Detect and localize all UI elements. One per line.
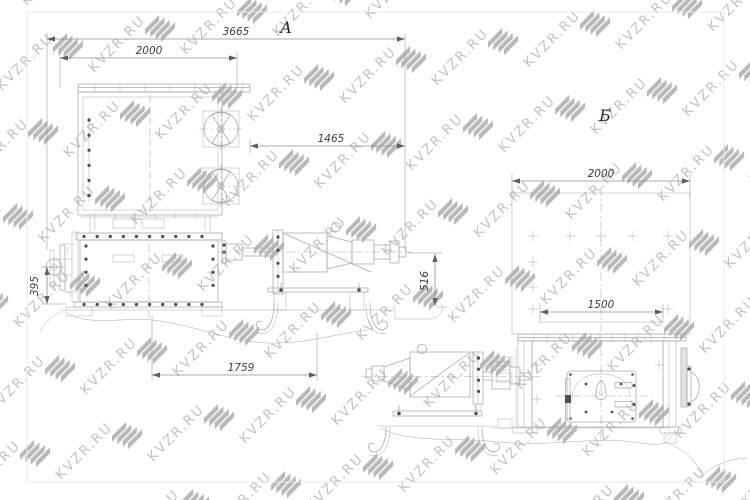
watermark-logo-icon — [318, 297, 354, 333]
watermark-text: KVZR.RU — [629, 226, 692, 289]
watermark-text: KVZR.RU — [654, 141, 717, 204]
watermark-text: KVZR.RU — [512, 329, 575, 392]
watermark-logo-icon — [276, 145, 312, 181]
watermark-text: KVZR.RU — [487, 414, 550, 477]
dim-2000b-value: 2000 — [588, 168, 615, 180]
view-b-label: Б — [598, 106, 611, 125]
dim-1465-value: 1465 — [318, 133, 345, 145]
watermark-text: KVZR.RU — [119, 486, 182, 500]
watermark-logo-icon — [117, 96, 153, 132]
watermark-logo-icon — [569, 328, 605, 364]
watermark-logo-icon — [594, 243, 630, 279]
watermark-text: KVZR.RU — [520, 7, 583, 70]
watermark-text: KVZR.RU — [361, 0, 424, 22]
watermark-logo-icon — [92, 181, 128, 217]
dim-1500-value: 1500 — [588, 299, 615, 311]
dim-516-value: 516 — [419, 271, 431, 291]
watermark-text: KVZR.RU — [746, 123, 750, 186]
watermark-layer: KVZR.RUKVZR.RUKVZR.RUKVZR.RUKVZR.RUKVZR.… — [0, 0, 750, 500]
watermark-logo-icon — [577, 6, 613, 42]
watermark-text: KVZR.RU — [0, 437, 24, 500]
watermark-text: KVZR.RU — [18, 0, 81, 9]
watermark-text: KVZR.RU — [453, 0, 516, 4]
right-bearing-bracket — [681, 348, 699, 407]
watermark-text: KVZR.RU — [420, 347, 483, 410]
watermark-logo-icon — [368, 127, 404, 163]
watermark-text: KVZR.RU — [0, 200, 7, 263]
watermark-logo-icon — [159, 248, 195, 284]
watermark-text: KVZR.RU — [738, 445, 750, 500]
technical-drawing-canvas: KVZR.RUKVZR.RUKVZR.RUKVZR.RUKVZR.RUKVZR.… — [0, 0, 750, 500]
watermark-logo-icon — [109, 418, 145, 454]
watermark-text: KVZR.RU — [470, 177, 533, 240]
dim-3665-value: 3665 — [223, 26, 250, 38]
watermark-text: KVZR.RU — [261, 298, 324, 361]
watermark-logo-icon — [619, 158, 655, 194]
door-latch — [615, 383, 632, 389]
watermark-logo-icon — [485, 24, 521, 60]
watermark-logo-icon — [611, 480, 647, 500]
watermark-text: KVZR.RU — [353, 280, 416, 343]
watermark-text: KVZR.RU — [378, 195, 441, 258]
watermark-logo-icon — [502, 261, 538, 297]
watermark-text: KVZR.RU — [144, 401, 207, 464]
watermark-text: KVZR.RU — [169, 316, 232, 379]
watermark-logo-icon — [736, 55, 750, 91]
watermark-logo-icon — [460, 109, 496, 145]
dim-395-value: 395 — [29, 276, 41, 296]
watermark-text: KVZR.RU — [244, 61, 307, 124]
dim-b-opening: 1500 — [540, 299, 663, 323]
watermark-logo-icon — [544, 413, 580, 449]
watermark-text: KVZR.RU — [211, 468, 274, 500]
fan-impeller-icon — [199, 107, 244, 151]
watermark-text: KVZR.RU — [60, 97, 123, 160]
watermark-logo-icon — [728, 377, 750, 413]
spring-hanger-icon — [256, 303, 278, 334]
watermark-text: KVZR.RU — [604, 311, 667, 374]
watermark-logo-icon — [42, 351, 78, 387]
watermark-logo-icon — [661, 310, 697, 346]
watermark-text: KVZR.RU — [704, 0, 750, 35]
watermark-logo-icon — [17, 436, 53, 472]
watermark-logo-icon — [293, 382, 329, 418]
watermark-logo-icon — [268, 467, 304, 500]
watermark-logo-icon — [209, 78, 245, 114]
watermark-logo-icon — [435, 194, 471, 230]
watermark-logo-icon — [50, 29, 86, 65]
watermark-logo-icon — [644, 73, 680, 109]
watermark-logo-icon — [686, 225, 722, 261]
watermark-text: KVZR.RU — [403, 110, 466, 173]
watermark-text: KVZR.RU — [554, 481, 617, 500]
watermark-text: KVZR.RU — [0, 352, 49, 415]
watermark-logo-icon — [343, 212, 379, 248]
watermark-logo-icon — [234, 0, 270, 29]
watermark-text: KVZR.RU — [269, 0, 332, 40]
watermark-logo-icon — [385, 364, 421, 400]
watermark-logo-icon — [552, 91, 588, 127]
watermark-text: KVZR.RU — [587, 74, 650, 137]
watermark-text: KVZR.RU — [286, 213, 349, 276]
watermark-logo-icon — [25, 114, 61, 150]
watermark-logo-icon — [301, 60, 337, 96]
watermark-logo-icon — [477, 346, 513, 382]
watermark-logo-icon — [226, 315, 262, 351]
screenshot-root: { "watermark": { "text": "KVZR.RU" }, "d… — [0, 0, 750, 500]
watermark-text: KVZR.RU — [612, 0, 675, 53]
watermark-text: KVZR.RU — [445, 262, 508, 325]
watermark-logo-icon — [711, 140, 747, 176]
watermark-text: KVZR.RU — [35, 182, 98, 245]
watermark-text: KVZR.RU — [495, 92, 558, 155]
watermark-text: KVZR.RU — [303, 450, 366, 500]
watermark-logo-icon — [0, 284, 11, 320]
watermark-logo-icon — [636, 395, 672, 431]
watermark-text: KVZR.RU — [679, 56, 742, 119]
watermark-logo-icon — [360, 449, 396, 485]
watermark-text: KVZR.RU — [52, 419, 115, 482]
watermark-text: KVZR.RU — [328, 365, 391, 428]
watermark-logo-icon — [0, 199, 36, 235]
watermark-text: KVZR.RU — [0, 30, 57, 93]
watermark-logo-icon — [251, 230, 287, 266]
watermark-logo-icon — [393, 42, 429, 78]
spring-hanger-icon — [368, 427, 390, 456]
watermark-text: KVZR.RU — [696, 293, 750, 356]
watermark-text: KVZR.RU — [77, 334, 140, 397]
watermark-text: KVZR.RU — [10, 267, 73, 330]
view-a-label: А — [279, 18, 292, 37]
watermark-logo-icon — [142, 11, 178, 47]
watermark-text: KVZR.RU — [236, 383, 299, 446]
left-mounting-bracket — [497, 346, 516, 428]
watermark-logo-icon — [201, 400, 237, 436]
watermark-logo-icon — [326, 0, 362, 11]
watermark-logo-icon — [703, 462, 739, 498]
watermark-text: KVZR.RU — [428, 25, 491, 88]
dim-2000a-value: 2000 — [136, 45, 163, 57]
watermark-text: KVZR.RU — [336, 43, 399, 106]
watermark-text: KVZR.RU — [395, 432, 458, 495]
watermark-text: KVZR.RU — [721, 208, 750, 271]
dim-1759-value: 1759 — [228, 362, 255, 374]
watermark-text: KVZR.RU — [127, 164, 190, 227]
